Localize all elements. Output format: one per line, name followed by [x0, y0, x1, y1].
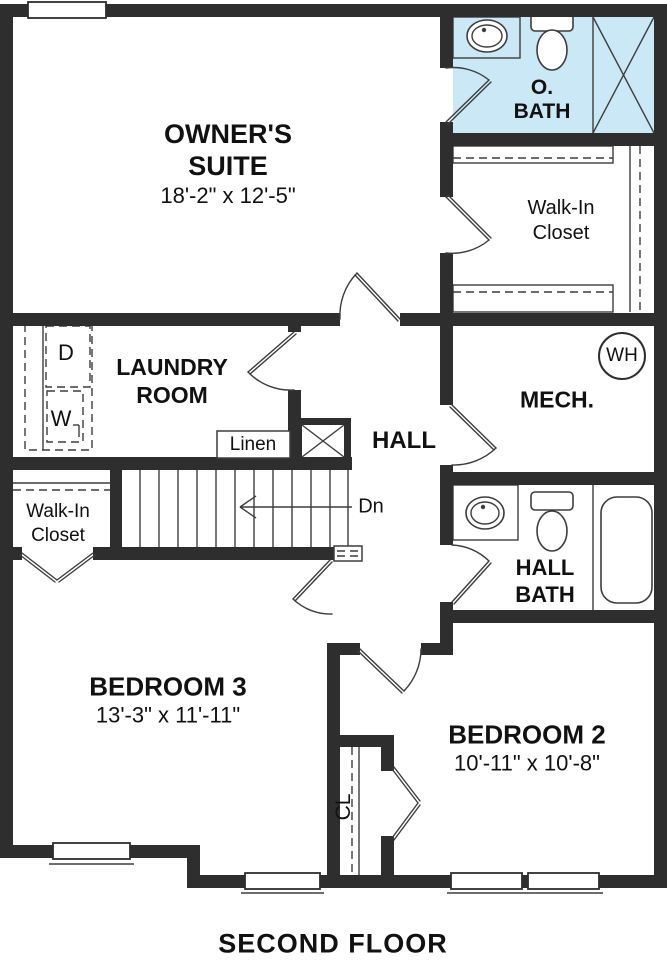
- room-dims: 13'-3" x 11'-11": [89, 702, 246, 729]
- room-name: Walk-In: [26, 500, 90, 524]
- door-walk-in-closet-left: [20, 553, 95, 582]
- stair-rail: [334, 546, 362, 561]
- door-walk-in-closet-top: [446, 195, 491, 253]
- floor-plan: OWNER'S SUITE 18'-2" x 12'-5" O. BATH Wa…: [0, 0, 667, 960]
- room-name: BATH: [514, 100, 571, 124]
- room-dims: 10'-11" x 10'-8": [448, 750, 605, 777]
- laundry-label: LAUNDRY ROOM: [116, 353, 228, 409]
- o-bath-label: O. BATH: [514, 76, 571, 124]
- door-bedroom2: [358, 649, 421, 693]
- room-name: OWNER'S: [160, 118, 295, 150]
- window: [28, 2, 106, 18]
- room-name: SUITE: [160, 150, 295, 182]
- window: [53, 843, 130, 859]
- owners-suite-label: OWNER'S SUITE 18'-2" x 12'-5": [160, 118, 295, 210]
- bedroom3-label: BEDROOM 3 13'-3" x 11'-11": [89, 672, 246, 729]
- linen-label: Linen: [230, 434, 277, 456]
- mech-label: MECH.: [520, 387, 594, 414]
- room-name: O.: [514, 76, 571, 100]
- room-name: BEDROOM 3: [89, 672, 246, 702]
- room-name: Walk-In: [527, 196, 594, 221]
- cl-closet-label: CL: [332, 794, 356, 821]
- room-name: ROOM: [116, 381, 228, 409]
- room-name: BATH: [515, 581, 574, 608]
- chase-box: [295, 418, 351, 464]
- door-cl-closet: [392, 767, 420, 840]
- door-laundry: [248, 332, 296, 390]
- sink-icon: [453, 485, 518, 540]
- door-hall-bath: [452, 545, 491, 604]
- water-heater-label: WH: [606, 345, 638, 367]
- hall-label: HALL: [372, 427, 436, 455]
- door-bedroom3: [293, 560, 332, 614]
- room-name: HALL: [515, 554, 574, 581]
- bedroom2-label: BEDROOM 2 10'-11" x 10'-8": [448, 720, 605, 777]
- bathtub-icon: [593, 485, 652, 610]
- room-name: Closet: [26, 524, 90, 548]
- hall-bath-label: HALL BATH: [515, 554, 574, 608]
- closet-shelving-left: [13, 483, 110, 490]
- stairs: [140, 468, 352, 547]
- toilet-icon: [531, 492, 573, 551]
- walk-in-closet-top-label: Walk-In Closet: [527, 196, 594, 246]
- door-owners-suite: [340, 273, 400, 321]
- washer-label: W: [51, 406, 72, 432]
- room-name: BEDROOM 2: [448, 720, 605, 750]
- stairs-down-label: Dn: [358, 496, 384, 519]
- stairs-down-arrow: [240, 496, 352, 518]
- dryer-label: D: [58, 340, 74, 366]
- window: [245, 873, 320, 889]
- walk-in-closet-left-label: Walk-In Closet: [26, 500, 90, 548]
- room-name: LAUNDRY: [116, 353, 228, 381]
- window: [451, 873, 522, 889]
- window: [528, 873, 599, 889]
- room-name: Closet: [527, 221, 594, 246]
- room-dims: 18'-2" x 12'-5": [160, 182, 295, 210]
- door-mech: [450, 405, 496, 465]
- floor-title: SECOND FLOOR: [218, 929, 448, 960]
